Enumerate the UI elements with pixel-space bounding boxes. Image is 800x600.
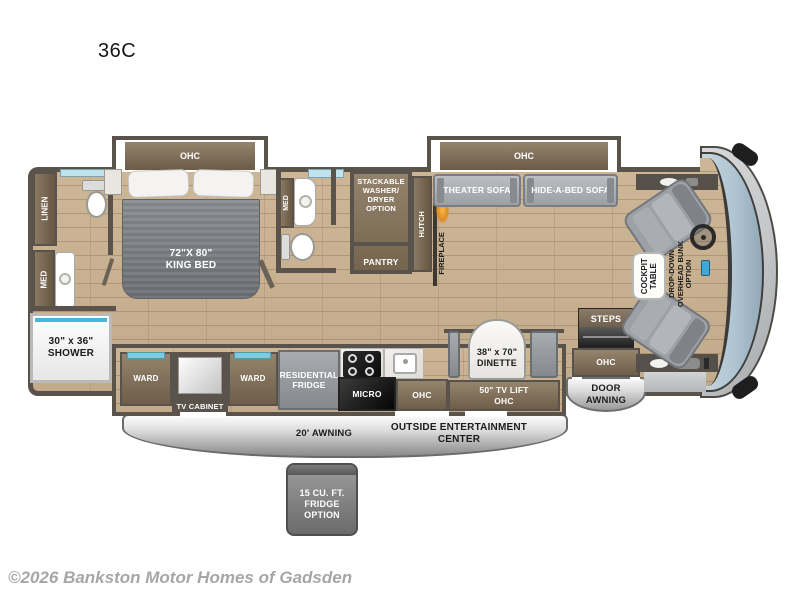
pantry-label: PANTRY	[354, 257, 408, 267]
door-awning-label: DOOR AWNING	[568, 379, 644, 410]
dash-switch	[704, 358, 709, 369]
dinette-label: 38" x 70" DINETTE	[470, 337, 524, 378]
wardrobe-right-label: WARD	[240, 374, 265, 384]
bedroom-slideout: OHC	[112, 136, 268, 172]
hutch: HUTCH	[412, 176, 432, 272]
bed-label: 72"X 80" KING BED	[123, 222, 259, 298]
entry-ohc: OHC	[572, 348, 640, 377]
fridge-line2: FRIDGE	[292, 380, 325, 390]
burner	[365, 367, 374, 376]
hide-a-bed-sofa: HIDE-A-BED SOFA	[523, 174, 618, 207]
tv-lift-line1: 50" TV LIFT	[479, 385, 528, 395]
wardrobe-left-label: WARD	[133, 374, 158, 384]
living-ohc-label: OHC	[514, 151, 534, 161]
fridge-option-box-flap	[288, 465, 356, 475]
entry-ohc-label: OHC	[596, 357, 616, 367]
dinette-seat-right	[530, 331, 558, 378]
fridge-option-box: 15 CU. FT. FRIDGE OPTION	[286, 463, 358, 536]
wardrobe-left: WARD	[120, 352, 172, 406]
linen-label: LINEN	[40, 197, 49, 221]
hide-a-bed-sofa-label: HIDE-A-BED SOFA	[525, 176, 616, 205]
steps-text: STEPS	[591, 314, 622, 325]
dinette-seat-left	[448, 331, 460, 378]
washer-line3: DRYER	[368, 195, 395, 204]
faucet	[403, 359, 408, 364]
wardrobe-right-window	[234, 352, 271, 359]
theater-sofa-label: THEATER SOFA	[435, 176, 519, 205]
shower: 30" x 36" SHOWER	[30, 313, 112, 383]
mid-med-label: MED	[282, 195, 290, 211]
overhead-bunk-option: DROP-DOWN OVERHEAD BUNK OPTION	[662, 226, 700, 322]
hutch-label: HUTCH	[418, 211, 427, 237]
bedroom-ohc: OHC	[125, 142, 255, 170]
microwave-label: MICRO	[352, 389, 381, 399]
patio-awning: 20' AWNING OUTSIDE ENTERTAINMENT CENTER	[122, 414, 568, 458]
shower-label: 30" x 36" SHOWER	[33, 316, 109, 380]
mid-bath-sink-counter	[294, 178, 316, 226]
cockpit-table-line1: COCKPIT	[640, 258, 649, 294]
outside-entertainment-line2: CENTER	[438, 434, 480, 446]
tv-lift-cabinet: 50" TV LIFT OHC	[448, 380, 560, 411]
fridge-option-label: 15 CU. FT. FRIDGE OPTION	[288, 475, 356, 534]
rear-bath-sink-counter	[55, 252, 75, 308]
tv-cabinet: TV CABINET	[172, 352, 228, 412]
dinette-size: 38" x 70"	[477, 347, 517, 358]
living-slideout: OHC	[427, 136, 621, 172]
fireplace-label: FIREPLACE	[438, 232, 447, 275]
pillow-left	[128, 169, 190, 198]
shower-wall	[28, 306, 116, 311]
rear-toilet	[86, 191, 107, 218]
bed-mattress: 72"X 80" KING BED	[122, 199, 260, 299]
step-tread	[583, 336, 629, 338]
mid-toilet-tank	[281, 234, 290, 260]
fridge-option-line1: 15 CU. FT.	[299, 488, 344, 499]
microwave: MICRO	[338, 377, 396, 411]
tv-screen	[178, 357, 222, 394]
dinette-table: 38" x 70" DINETTE	[468, 319, 526, 380]
mid-bath-sink	[299, 195, 312, 208]
kitchen-ohc: OHC	[396, 379, 448, 411]
bunk-line3: OPTION	[685, 241, 694, 307]
sink-counter	[384, 348, 424, 379]
fireplace: FIREPLACE	[434, 216, 450, 290]
tv-lift-line2: OHC	[494, 396, 514, 406]
pillow-right	[193, 169, 255, 198]
bedroom-ohc-label: OHC	[180, 151, 200, 161]
washer-dryer-closet: STACKABLE WASHER/ DRYER OPTION PANTRY	[350, 170, 412, 274]
rear-bath-window	[60, 169, 106, 177]
fridge-option-line3: OPTION	[304, 510, 340, 521]
nightstand-left	[104, 169, 122, 195]
mid-bath-window	[308, 169, 344, 178]
copyright-watermark: ©2026 Bankston Motor Homes of Gadsden	[8, 568, 352, 588]
wardrobe-right: WARD	[228, 352, 278, 406]
wardrobe-left-window	[127, 352, 165, 359]
residential-fridge: RESIDENTIAL FRIDGE	[278, 350, 340, 410]
fridge-option-line2: FRIDGE	[304, 499, 339, 510]
mid-bath-wall-right	[331, 167, 336, 225]
door-awning-line2: AWNING	[586, 395, 626, 406]
outside-entertainment-label: OUTSIDE ENTERTAINMENT CENTER	[374, 422, 544, 446]
dash-screen	[701, 260, 710, 276]
washer-line1: STACKABLE	[357, 177, 405, 186]
floorplan-canvas: 36C 20' AWNING OUTSIDE ENTERTAINMENT CEN…	[0, 0, 800, 600]
floorplan-title: 36C	[98, 40, 136, 63]
rear-med-label: MED	[39, 271, 48, 289]
awning-length-label: 20' AWNING	[274, 428, 374, 439]
theater-sofa: THEATER SOFA	[433, 174, 521, 207]
dinette-name: DINETTE	[477, 358, 517, 369]
fridge-line1: RESIDENTIAL	[280, 370, 339, 380]
mid-toilet	[290, 233, 315, 261]
rear-med-cabinet: MED	[33, 250, 55, 310]
cooktop	[343, 351, 381, 378]
king-bed: 72"X 80" KING BED	[122, 169, 260, 299]
steering-hub	[701, 235, 706, 240]
mid-med-cabinet: MED	[279, 178, 294, 228]
pantry-divider	[354, 242, 408, 246]
outside-entertainment-line1: OUTSIDE ENTERTAINMENT	[391, 422, 527, 434]
cockpit-table: COCKPIT TABLE	[632, 252, 666, 300]
pantry-text: PANTRY	[363, 257, 398, 267]
cab-skirt	[644, 372, 706, 392]
living-ohc: OHC	[440, 142, 608, 170]
shower-name: SHOWER	[48, 348, 94, 360]
washer-line4: OPTION	[366, 204, 396, 213]
bed-name: KING BED	[166, 260, 217, 272]
burner	[365, 354, 374, 363]
rear-bath-sink	[59, 273, 71, 285]
burner	[348, 367, 357, 376]
tv-cabinet-label: TV CABINET	[172, 402, 228, 411]
door-awning: DOOR AWNING	[566, 377, 646, 412]
washer-line2: WASHER/	[363, 186, 399, 195]
cockpit-table-line2: TABLE	[649, 258, 658, 294]
kitchen-ohc-label: OHC	[412, 390, 432, 400]
shower-size: 30" x 36"	[49, 336, 94, 348]
linen-cabinet: LINEN	[33, 172, 57, 246]
washer-dryer-label: STACKABLE WASHER/ DRYER OPTION	[354, 177, 408, 213]
burner	[348, 354, 357, 363]
bed-size: 72"X 80"	[170, 248, 213, 260]
mid-bath-wall-bottom	[279, 268, 336, 273]
tv-cabinet-text: TV CABINET	[177, 402, 224, 411]
door-awning-line1: DOOR	[591, 383, 620, 394]
